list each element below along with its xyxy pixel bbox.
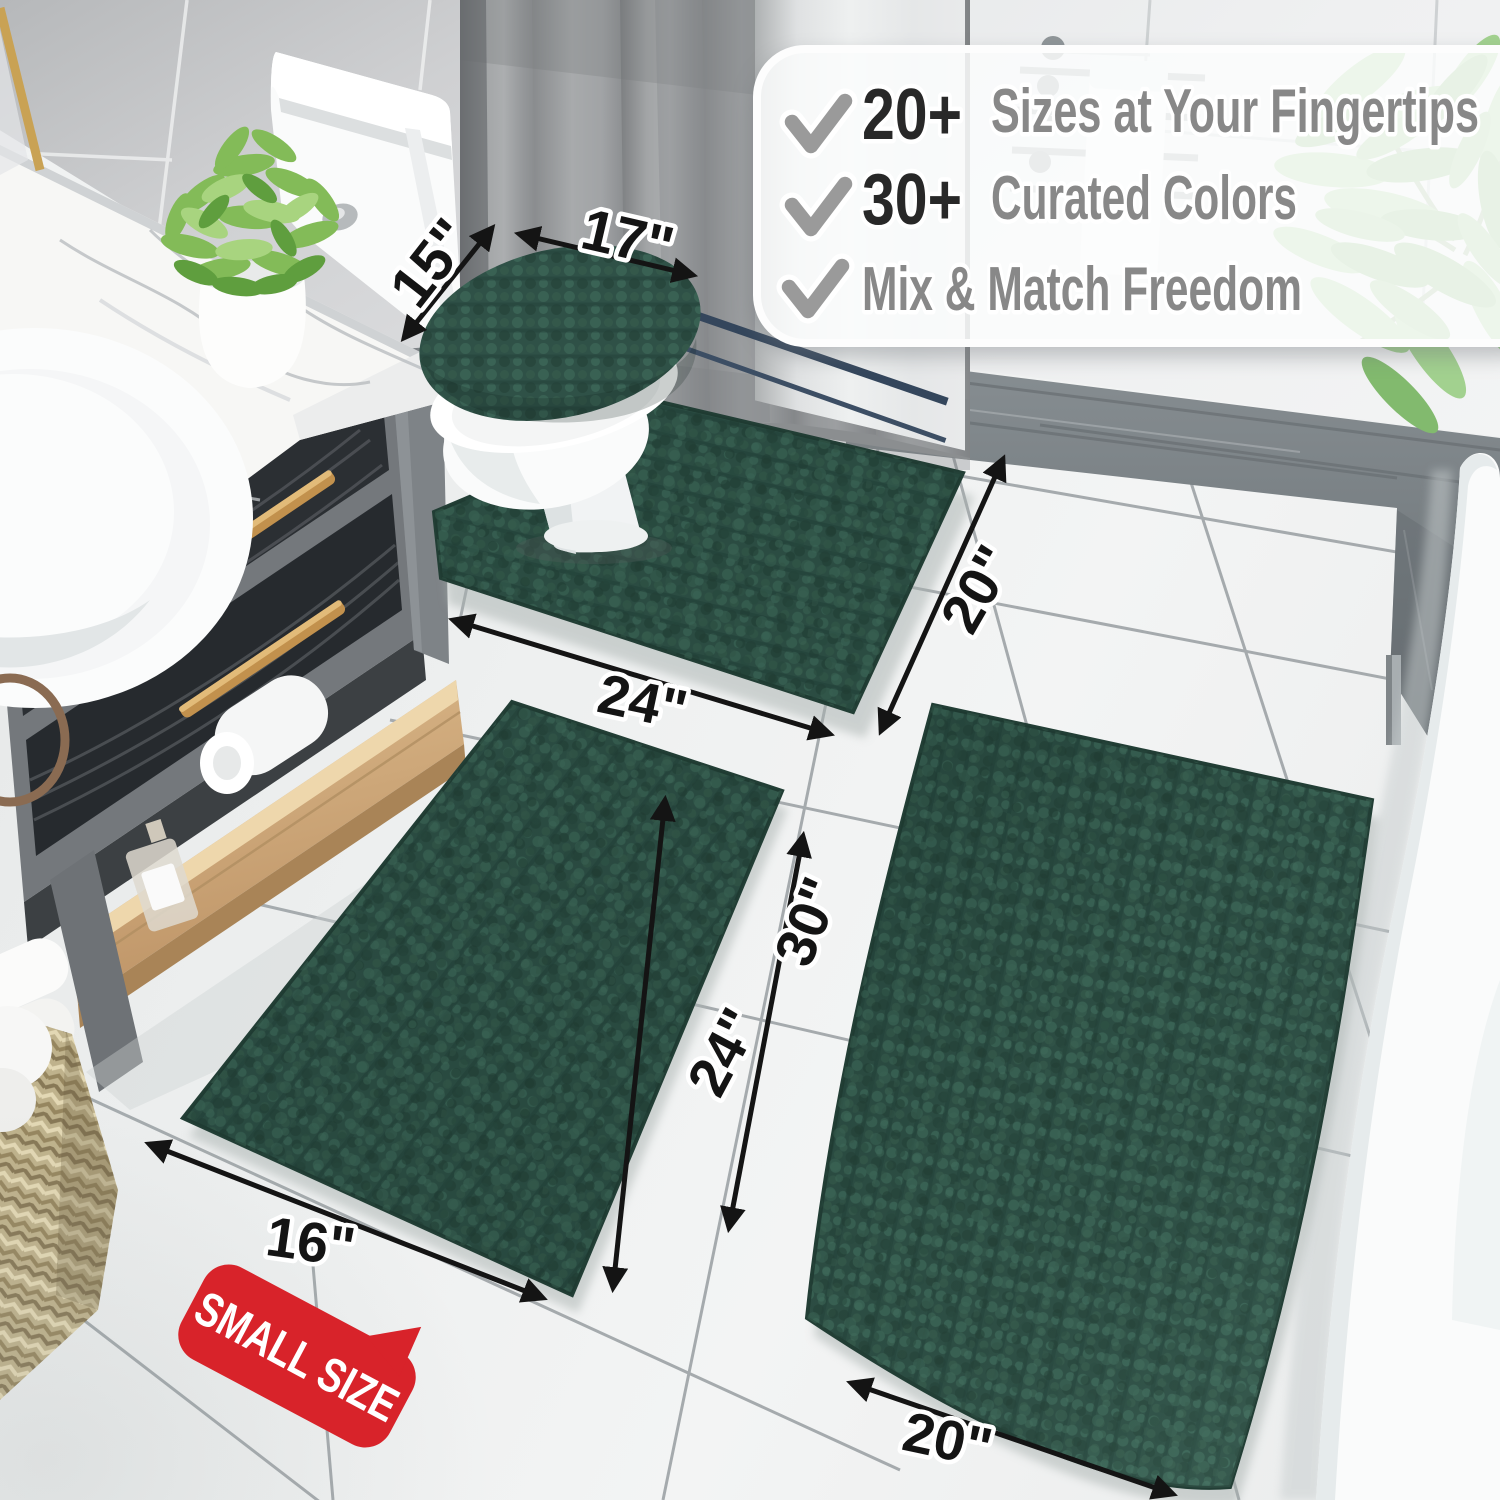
svg-text:30+: 30+ xyxy=(862,160,962,240)
svg-text:Mix & Match Freedom: Mix & Match Freedom xyxy=(862,255,1302,324)
svg-text:16": 16" xyxy=(262,1204,359,1279)
svg-text:20": 20" xyxy=(928,535,1027,643)
svg-text:20": 20" xyxy=(898,1399,998,1479)
svg-text:17": 17" xyxy=(576,196,680,280)
svg-text:Curated Colors: Curated Colors xyxy=(991,164,1297,233)
svg-text:24": 24" xyxy=(593,661,693,741)
svg-text:Sizes at Your Fingertips: Sizes at Your Fingertips xyxy=(991,77,1479,146)
svg-text:30": 30" xyxy=(762,869,854,975)
svg-text:15": 15" xyxy=(377,207,485,320)
svg-text:20+: 20+ xyxy=(862,75,962,155)
